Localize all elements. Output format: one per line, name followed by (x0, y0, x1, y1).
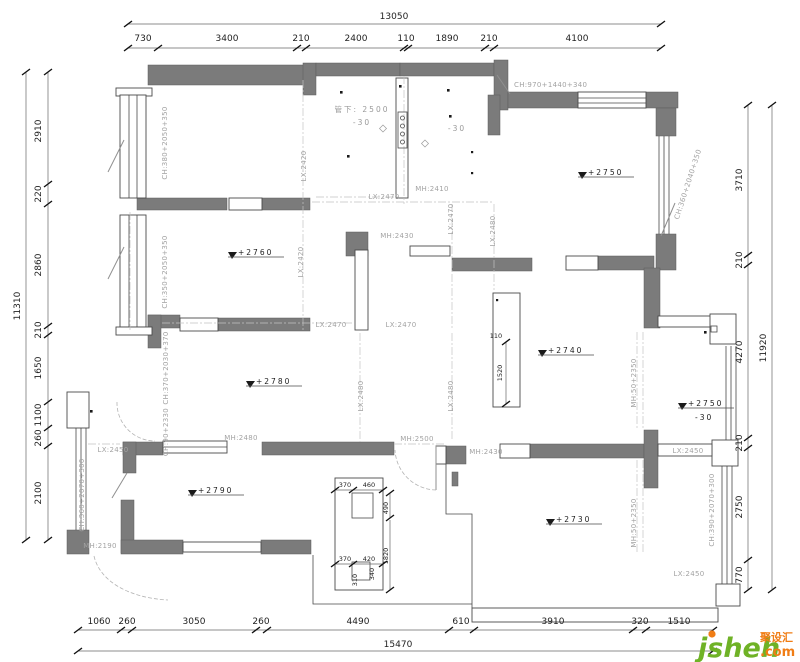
svg-text:+2730: +2730 (556, 515, 591, 524)
label-mh2410: MH:2410 (415, 185, 449, 193)
dim-left-total: 11310 (13, 291, 23, 320)
label-win-left-small: CH:90+2330 (162, 408, 170, 456)
dim-right-3: 210 (735, 434, 745, 451)
watermark-logo: jsheh 聚设汇 .com (694, 630, 795, 662)
dim-left-0: 2910 (34, 119, 44, 142)
cab-dim-2: 490 (382, 502, 390, 514)
label-win-left-low: CH:370+2030+370 (162, 331, 170, 404)
label-door-head: CH:970+1440+340 (514, 81, 587, 89)
label-lx2480-b: LX:2480 (357, 381, 365, 412)
balcony-door-arc-bottom (94, 556, 168, 600)
dim-right-2: 4270 (735, 340, 745, 363)
island-width: 110 (490, 332, 502, 340)
note-pipe-line1: 管下: 2500 (335, 104, 390, 114)
island-length: 1520 (496, 365, 504, 382)
dim-top-6: 210 (480, 34, 497, 44)
label-mh50-a: MH:50+2350 (630, 358, 638, 407)
dim-top-total: 13050 (380, 12, 409, 22)
svg-text:+2750: +2750 (588, 168, 623, 177)
label-mh2500: MH:2500 (400, 435, 434, 443)
note-utility-offset: -30 (448, 124, 466, 133)
dim-bottom-3: 260 (252, 617, 269, 627)
dim-bottom-7: 320 (631, 617, 648, 627)
dim-top-4: 110 (397, 34, 414, 44)
label-mh2430-a: MH:2430 (380, 232, 414, 240)
label-lx2450-c: LX:2450 (674, 570, 705, 578)
dim-right-1: 210 (735, 251, 745, 268)
label-lx2480-c: LX:2480 (447, 381, 455, 412)
cab-dim-1: 460 (363, 481, 375, 489)
dim-top-3: 2400 (345, 34, 368, 44)
label-lx2420-a: LX:2420 (300, 151, 308, 182)
dim-bottom-1: 260 (118, 617, 135, 627)
dim-bottom-6: 3910 (542, 617, 565, 627)
casement-right (661, 203, 675, 236)
dim-top-0: 730 (134, 34, 151, 44)
window-run-br (722, 466, 732, 584)
label-lx2470-b: LX:2470 (447, 204, 455, 235)
dim-top-2: 210 (292, 34, 309, 44)
dim-left-3: 210 (34, 321, 44, 338)
cab-dim-4: 370 (339, 555, 351, 563)
dim-right-total: 11920 (759, 333, 769, 362)
label-lx2480-a: LX:2480 (489, 216, 497, 247)
label-mh50-b: MH:50+2350 (630, 498, 638, 547)
dim-chain-right: 11920 3710 210 4270 210 2750 770 (735, 102, 776, 593)
cab-dim-6: 340 (368, 568, 376, 580)
dim-chain-left: 11310 2910 220 2860 210 1650 1100 260 21… (13, 69, 52, 543)
cab-dim-7: 310 (351, 574, 359, 586)
level-living: +2780 (246, 377, 302, 388)
label-mh2190: MH:2190 (83, 542, 117, 550)
level-dining: +2740 (538, 346, 594, 357)
label-mh2480: MH:2480 (224, 434, 258, 442)
dim-right-4: 2750 (735, 495, 745, 518)
dim-left-5: 1100 (34, 403, 44, 426)
note-pipe-line2: -30 (353, 118, 371, 127)
label-win-left-mid: CH:350+2050+350 (161, 235, 169, 308)
cab-dim-5: 420 (363, 555, 375, 563)
dim-bottom-5: 610 (452, 617, 469, 627)
label-lx2420-b: LX:2420 (297, 247, 305, 278)
watermark-dot-icon (708, 630, 715, 637)
dim-left-1: 220 (34, 185, 44, 202)
label-win-right-top: CH:360+2040+350 (673, 148, 703, 220)
svg-text:+2740: +2740 (548, 346, 583, 355)
cab-dim-0: 370 (339, 481, 351, 489)
svg-text:-30: -30 (695, 413, 713, 422)
dim-left-7: 2100 (34, 481, 44, 504)
label-lx2470-d: LX:2470 (386, 321, 417, 329)
balcony-door-arc-top (117, 402, 155, 441)
dim-chain-bottom: 1060 260 3050 260 4490 610 3910 320 1510… (74, 617, 717, 654)
dim-right-5: 770 (735, 566, 745, 583)
svg-text:+2780: +2780 (256, 377, 291, 386)
label-win-left-top: CH:380+2050+350 (161, 106, 169, 179)
label-win-right-bottom: CH:390+2070+300 (708, 473, 716, 546)
watermark-tld: .com (760, 645, 795, 660)
dim-left-4: 1650 (34, 356, 44, 379)
dim-bottom-4: 4490 (347, 617, 370, 627)
label-lx2450-a: LX:2450 (98, 446, 129, 454)
dim-bottom-total: 15470 (384, 640, 413, 650)
dim-top-7: 4100 (566, 34, 589, 44)
dim-top-5: 1890 (436, 34, 459, 44)
svg-text:+2790: +2790 (198, 486, 233, 495)
dim-bottom-0: 1060 (88, 617, 111, 627)
floorplan-canvas: 13050 730 3400 210 2400 110 1890 210 410… (0, 0, 800, 662)
dim-right-0: 3710 (735, 168, 745, 191)
svg-text:+2750: +2750 (688, 399, 723, 408)
island-counter (493, 293, 520, 407)
level-room-br: +2730 (546, 515, 602, 526)
dim-chain-top: 13050 730 3400 210 2400 110 1890 210 410… (124, 12, 665, 51)
floorplan-page: 13050 730 3400 210 2400 110 1890 210 410… (0, 0, 800, 662)
label-mh2430-b: MH:2430 (469, 448, 503, 456)
svg-text:+2760: +2760 (238, 248, 273, 257)
balcony-door-leaf (112, 473, 127, 498)
watermark-cn: 聚设汇 (759, 630, 793, 644)
label-lx2470-c: LX:2470 (316, 321, 347, 329)
diamond-symbol (380, 125, 387, 132)
dim-bottom-8: 1510 (668, 617, 691, 627)
level-room-left: +2760 (228, 248, 284, 259)
window-run-right-top (659, 136, 669, 234)
dim-left-6: 260 (34, 429, 44, 446)
level-master: +2790 (188, 486, 244, 497)
diamond-symbol (422, 140, 429, 147)
dim-left-2: 2860 (34, 253, 44, 276)
label-lx2450-b: LX:2450 (673, 447, 704, 455)
dim-bottom-2: 3050 (183, 617, 206, 627)
hall-door-arc (395, 450, 436, 490)
label-lx2470-a: LX:2470 (369, 193, 400, 201)
dim-top-1: 3400 (216, 34, 239, 44)
label-win-balcony-left: CH:360+2070+300 (78, 458, 86, 531)
level-room-tr: +2750 (578, 168, 634, 179)
